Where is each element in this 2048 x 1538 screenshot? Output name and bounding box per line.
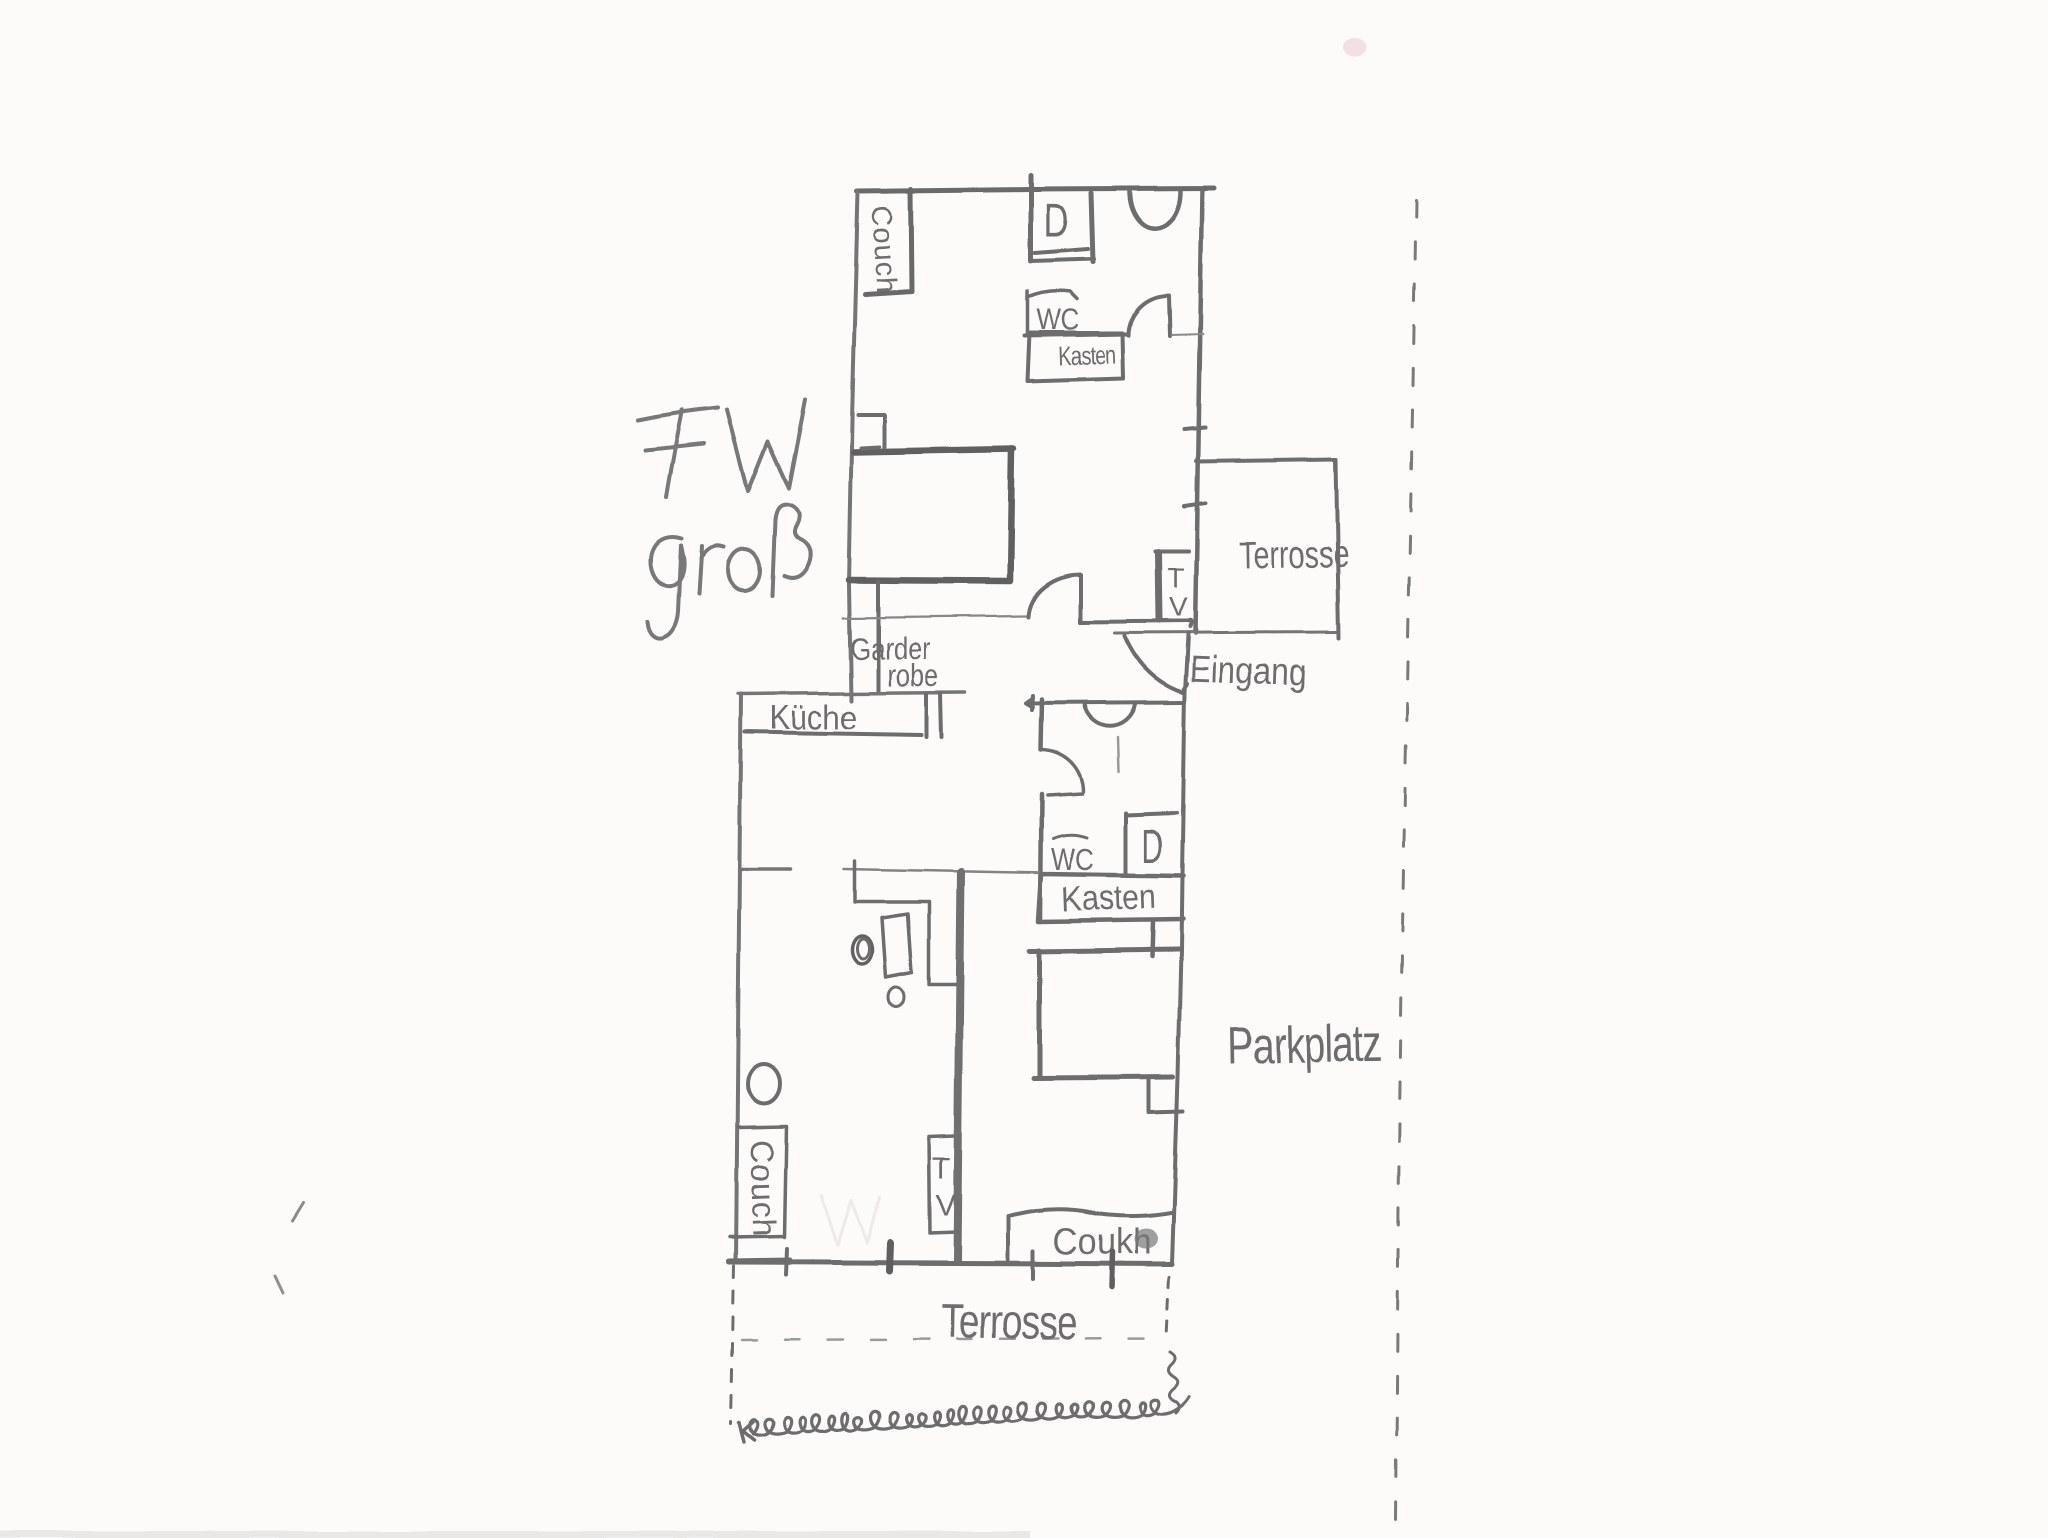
svg-text:Terrosse: Terrosse	[941, 1294, 1077, 1350]
svg-text:Eingang: Eingang	[1189, 649, 1308, 694]
svg-text:T: T	[932, 1152, 950, 1185]
svg-text:Terrosse: Terrosse	[1239, 534, 1349, 578]
svg-text:V: V	[936, 1189, 956, 1222]
svg-text:D: D	[1044, 193, 1069, 247]
svg-text:Couch: Couch	[865, 205, 902, 295]
svg-text:Kasten: Kasten	[1061, 876, 1157, 919]
svg-text:Parkplatz: Parkplatz	[1227, 1014, 1381, 1074]
svg-text:Küche: Küche	[770, 697, 857, 736]
svg-text:Kasten: Kasten	[1058, 340, 1116, 371]
svg-text:V: V	[1169, 591, 1188, 622]
svg-text:D: D	[1142, 820, 1163, 873]
svg-text:Couch: Couch	[743, 1139, 782, 1238]
svg-text:T: T	[1167, 562, 1184, 593]
svg-text:robe: robe	[887, 659, 939, 694]
